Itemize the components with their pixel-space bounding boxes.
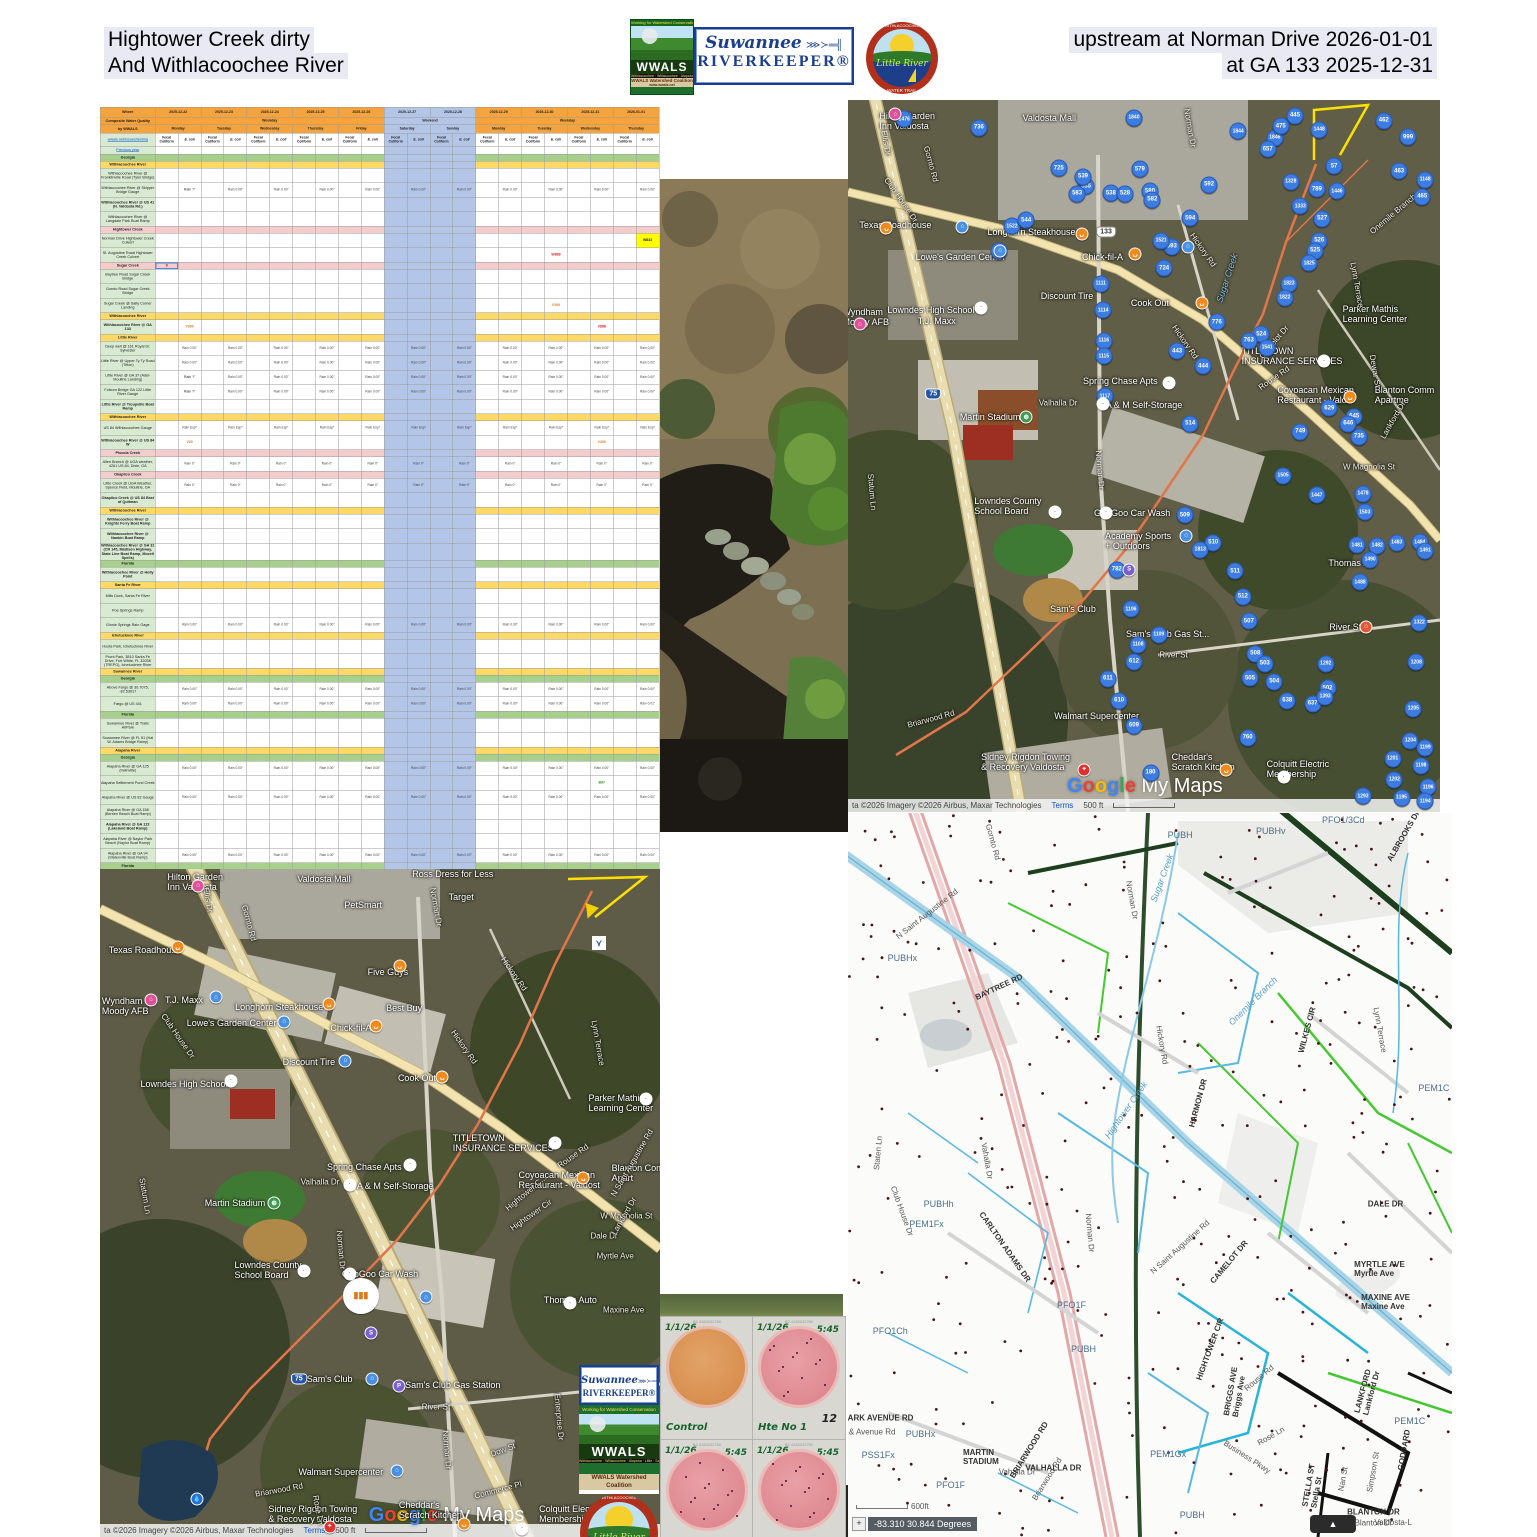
date-header: 2025-12-26: [338, 107, 384, 117]
value-cell: [316, 471, 339, 478]
value-cell: [361, 493, 384, 508]
value-cell: [613, 262, 636, 269]
poi-marker[interactable]: ⌂: [1360, 620, 1373, 633]
numbered-map-marker[interactable]: 512: [1234, 588, 1251, 605]
value-cell: Rain 0": [270, 457, 293, 472]
numbered-map-marker[interactable]: 1111: [1092, 275, 1109, 292]
poi-marker[interactable]: ◍: [268, 1197, 281, 1210]
numbered-map-marker[interactable]: 1198: [1413, 757, 1430, 774]
satellite-map-bottom-left[interactable]: ta ©2026 Imagery ©2026 Airbus, Maxar Tec…: [100, 869, 660, 1537]
poi-marker[interactable]: ·: [1277, 771, 1290, 784]
numbered-map-marker[interactable]: 1483: [1388, 534, 1405, 551]
value-cell: [201, 632, 224, 639]
value-cell: [476, 668, 499, 675]
poi-marker[interactable]: ⌖: [323, 1520, 336, 1533]
value-cell: [224, 805, 247, 820]
value-cell: [567, 284, 590, 299]
poi-marker[interactable]: ⌂: [1180, 529, 1193, 542]
numbered-map-marker[interactable]: 1108: [1130, 636, 1147, 653]
numbered-map-marker[interactable]: 444: [1195, 358, 1212, 375]
collapse-button[interactable]: ▲: [1310, 1515, 1356, 1533]
coordinate-readout: -83.310 30.844 Degrees: [868, 1517, 977, 1531]
value-cell: [407, 819, 430, 834]
value-cell: [567, 682, 590, 697]
value-cell: [155, 161, 178, 168]
numbered-map-marker[interactable]: 1116: [1095, 332, 1112, 349]
value-cell: [567, 493, 590, 508]
numbered-map-marker[interactable]: 1491: [1417, 542, 1434, 559]
value-cell: [476, 589, 499, 604]
value-cell: [613, 313, 636, 320]
numbered-map-marker[interactable]: 1205: [1405, 700, 1422, 717]
numbered-map-marker[interactable]: 507: [1240, 613, 1257, 630]
poi-marker[interactable]: ·: [564, 1297, 577, 1310]
numbered-map-marker[interactable]: 736: [970, 119, 987, 136]
numbered-map-marker[interactable]: 1448: [1311, 121, 1328, 138]
poster: Hightower Creek dirty And Withlacoochee …: [0, 0, 1537, 1537]
map-label: Texas Roadhouse: [109, 945, 181, 955]
poi-marker[interactable]: S: [365, 1327, 378, 1340]
numbered-map-marker[interactable]: 1844: [1230, 123, 1247, 140]
poi-marker[interactable]: ·: [343, 1178, 356, 1191]
value-cell: [338, 435, 361, 450]
numbered-map-marker[interactable]: 505: [1241, 670, 1258, 687]
site-label: Florida: [100, 711, 155, 718]
poi-marker[interactable]: ⌂: [994, 244, 1007, 257]
value-cell: [567, 848, 590, 863]
numbered-map-marker[interactable]: 1115: [1095, 348, 1112, 365]
value-cell: V200: [545, 298, 568, 313]
value-cell: [338, 168, 361, 183]
value-cell: Rain 0.00": [453, 848, 476, 863]
numbered-map-marker[interactable]: 609: [1125, 717, 1142, 734]
poi-marker[interactable]: ·: [225, 1074, 238, 1087]
value-cell: Rain Esp*: [178, 421, 201, 436]
value-cell: [270, 654, 293, 669]
numbered-map-marker[interactable]: 724: [1156, 260, 1173, 277]
value-cell: [567, 589, 590, 604]
numbered-map-marker[interactable]: 503: [1256, 655, 1273, 672]
numbered-map-marker[interactable]: 528: [1117, 185, 1134, 202]
value-cell: [407, 226, 430, 233]
poi-marker[interactable]: ⌂: [192, 879, 205, 892]
value-cell: [545, 675, 568, 682]
value-cell: [293, 848, 316, 863]
value-cell: [613, 341, 636, 356]
numbered-map-marker[interactable]: 57: [1326, 158, 1343, 175]
value-cell: Rain 0.00": [361, 341, 384, 356]
value-cell: [567, 320, 590, 335]
handwritten-time: 5:45: [725, 1448, 747, 1458]
value-cell: [407, 805, 430, 820]
map-label: MARTIN STADIUM: [963, 1448, 999, 1466]
numbered-map-marker[interactable]: 1328: [1282, 173, 1299, 190]
large-poi-marker[interactable]: ▮▮▮: [343, 1278, 379, 1314]
value-cell: [590, 754, 613, 761]
value-cell: [224, 567, 247, 582]
value-cell: [155, 834, 178, 849]
poi-marker[interactable]: ⌂: [419, 1291, 432, 1304]
numbered-map-marker[interactable]: 1490: [1362, 551, 1379, 568]
value-cell: [522, 341, 545, 356]
value-cell: [361, 262, 384, 269]
value-cell: Rain 0.00": [590, 356, 613, 371]
numbered-map-marker[interactable]: 579: [1131, 161, 1148, 178]
poi-marker[interactable]: ⍽: [393, 959, 406, 972]
value-cell: [361, 320, 384, 335]
terms-link[interactable]: Terms: [1052, 801, 1074, 810]
value-cell: [270, 414, 293, 421]
value-cell: [613, 493, 636, 508]
numbered-map-marker[interactable]: 1822: [1276, 289, 1293, 306]
poi-marker[interactable]: ·: [516, 1522, 529, 1535]
value-cell: [545, 212, 568, 227]
value-cell: [224, 582, 247, 589]
poi-marker[interactable]: ⍽: [370, 1019, 383, 1032]
colony-dot: [685, 1476, 687, 1478]
site-label: Withlacoochee River @ US 41 (N. Valdosta…: [100, 197, 155, 212]
value-cell: [201, 675, 224, 682]
terms-link[interactable]: Terms: [304, 1526, 326, 1535]
value-cell: [384, 711, 407, 718]
poi-marker[interactable]: ⍽: [880, 222, 893, 235]
numbered-map-marker[interactable]: 539: [1075, 168, 1092, 185]
value-cell: [476, 543, 499, 560]
numbered-map-marker[interactable]: 509: [1176, 507, 1193, 524]
poi-marker[interactable]: ·: [549, 1136, 562, 1149]
numbered-map-marker[interactable]: 999: [1400, 129, 1417, 146]
value-cell: [361, 212, 384, 227]
poi-marker[interactable]: ⌖: [1078, 763, 1091, 776]
wwals-logo-small: WWALS Withlacoochee · Willacoochee · Ala…: [579, 1414, 659, 1474]
poi-marker[interactable]: ·: [975, 301, 988, 314]
value-cell: Rain 0": [590, 478, 613, 493]
subcol-header: FecalColiform: [567, 133, 590, 146]
numbered-map-marker[interactable]: 514: [1182, 415, 1199, 432]
numbered-map-marker[interactable]: 1199: [1417, 739, 1434, 756]
value-cell: [430, 733, 453, 748]
poi-marker[interactable]: ⌂: [144, 993, 157, 1006]
empty-cell: [613, 146, 636, 154]
value-cell: [407, 543, 430, 560]
flag-marker[interactable]: ⋎: [592, 936, 606, 950]
value-cell: [522, 478, 545, 493]
value-cell: [522, 790, 545, 805]
numbered-map-marker[interactable]: 1194: [1417, 793, 1434, 810]
value-cell: [545, 603, 568, 618]
numbered-map-marker[interactable]: 789: [1308, 181, 1325, 198]
numbered-map-marker[interactable]: 629: [1321, 400, 1338, 417]
value-cell: [270, 776, 293, 791]
value-cell: [522, 385, 545, 400]
poi-marker[interactable]: ·: [1097, 398, 1110, 411]
poi-marker[interactable]: ·: [1100, 506, 1113, 519]
value-cell: Rain 0.00": [270, 385, 293, 400]
site-label: Above Fargo @ 30.7075, -82.53017: [100, 682, 155, 697]
value-cell: Rain 0.00": [178, 341, 201, 356]
poi-marker[interactable]: ⌂: [209, 991, 222, 1004]
value-cell: [201, 529, 224, 544]
poi-marker[interactable]: ⍽: [1196, 296, 1209, 309]
value-cell: [522, 154, 545, 161]
date-header: 2025-12-31: [567, 107, 613, 117]
poi-marker[interactable]: ⌂: [339, 1054, 352, 1067]
poi-marker[interactable]: ⌂: [853, 318, 866, 331]
numbered-map-marker[interactable]: 1148: [1417, 171, 1434, 188]
value-cell: [613, 603, 636, 618]
value-cell: [293, 385, 316, 400]
numbered-map-marker[interactable]: 1393: [1317, 688, 1334, 705]
value-cell: [453, 567, 476, 582]
value-cell: [476, 761, 499, 776]
poi-marker[interactable]: 💧: [190, 1492, 203, 1505]
map-label: Colquitt Electric Membership: [1267, 759, 1330, 779]
value-cell: Rain 0.00": [224, 618, 247, 633]
value-cell: [293, 421, 316, 436]
numbered-map-marker[interactable]: 1521: [1153, 232, 1170, 249]
numbered-map-marker[interactable]: 1447: [1308, 487, 1325, 504]
numbered-map-marker[interactable]: 462: [1375, 112, 1392, 129]
numbered-map-marker[interactable]: 1825: [1301, 255, 1318, 272]
value-cell: Rain 0.00": [590, 790, 613, 805]
colony-dot: [776, 1519, 778, 1521]
numbered-map-marker[interactable]: 1292: [1317, 655, 1334, 672]
table-row: Alapaha River @ GA 125 (Irwinville)Rain …: [100, 761, 659, 776]
poi-marker[interactable]: ◍: [1020, 410, 1033, 423]
value-cell: Rain 0.00": [590, 761, 613, 776]
numbered-map-marker[interactable]: 725: [1050, 160, 1067, 177]
poi-marker[interactable]: S: [1123, 563, 1136, 576]
numbered-map-marker[interactable]: 1293: [1355, 788, 1372, 805]
poi-marker[interactable]: ⌂: [889, 108, 902, 121]
value-cell: [499, 334, 522, 341]
site-label: Withlacoochee River: [100, 507, 155, 514]
value-cell: [545, 197, 568, 212]
empty-cell: [499, 146, 522, 154]
numbered-map-marker[interactable]: 592: [1201, 176, 1218, 193]
numbered-map-marker[interactable]: 1195: [1393, 789, 1410, 806]
poi-marker[interactable]: ·: [640, 1093, 653, 1106]
value-cell: [293, 168, 316, 183]
value-cell: [590, 543, 613, 560]
poi-marker[interactable]: ⌂: [278, 1015, 291, 1028]
previous-year-link[interactable]: Previous year: [100, 146, 155, 154]
testing-link[interactable]: wwals.net/issues/testing: [100, 133, 155, 146]
numbered-map-marker[interactable]: 638: [1279, 692, 1296, 709]
value-cell: [384, 370, 407, 385]
week-group-header: Weekday: [476, 117, 659, 125]
numbered-map-marker[interactable]: 475: [1272, 118, 1289, 135]
numbered-map-marker[interactable]: 776: [1208, 314, 1225, 331]
table-row: Little River @ Troupville Boat Ramp: [100, 399, 659, 414]
value-cell: [407, 754, 430, 761]
numbered-map-marker[interactable]: 646: [1340, 415, 1357, 432]
site-label: Florida: [100, 560, 155, 567]
poi-marker[interactable]: ⍽: [323, 997, 336, 1010]
numbered-map-marker[interactable]: 1505: [1275, 467, 1292, 484]
poi-marker[interactable]: ·: [1049, 506, 1062, 519]
poi-marker[interactable]: ⍽: [436, 1070, 449, 1083]
value-cell: [338, 478, 361, 493]
value-cell: Rain 0": [361, 478, 384, 493]
numbered-map-marker[interactable]: 760: [1239, 729, 1256, 746]
day-header: Sunday: [430, 125, 476, 134]
value-cell: Rain 0.00": [545, 385, 568, 400]
value-cell: Rain 0.00": [178, 790, 201, 805]
value-cell: [247, 514, 270, 529]
poi-marker[interactable]: ⌂: [366, 1372, 379, 1385]
poi-marker[interactable]: ·: [297, 1265, 310, 1278]
value-cell: [293, 834, 316, 849]
value-cell: [430, 298, 453, 313]
value-cell: [407, 507, 430, 514]
numbered-map-marker[interactable]: 1333: [1292, 198, 1309, 215]
utility-wetland-map[interactable]: 600ft + -83.310 30.844 Degrees ▲ Valdost…: [848, 813, 1452, 1537]
poi-marker[interactable]: ⌂: [1181, 240, 1194, 253]
numbered-map-marker[interactable]: 1114: [1095, 302, 1112, 319]
numbered-map-marker[interactable]: 1541: [1259, 339, 1276, 356]
numbered-map-marker[interactable]: 511: [1227, 563, 1244, 580]
value-cell: Rain 0.00": [316, 697, 339, 712]
numbered-map-marker[interactable]: 611: [1099, 670, 1116, 687]
value-cell: [407, 284, 430, 299]
value-cell: [499, 675, 522, 682]
value-cell: Rain 0": [453, 457, 476, 472]
value-cell: [567, 435, 590, 450]
value-cell: [201, 313, 224, 320]
numbered-map-marker[interactable]: 1840: [1125, 109, 1142, 126]
poi-marker[interactable]: ⌂: [390, 1464, 403, 1477]
numbered-map-marker[interactable]: 465: [1414, 188, 1431, 205]
value-cell: [567, 399, 590, 414]
value-cell: Rain 0.00": [590, 682, 613, 697]
numbered-map-marker[interactable]: 1109: [1150, 626, 1167, 643]
value-cell: Rain 0.00": [316, 790, 339, 805]
value-cell: Rain 0.00": [316, 370, 339, 385]
creek-photo: [660, 179, 848, 832]
value-cell: [499, 269, 522, 284]
numbered-map-marker[interactable]: 1106: [1122, 601, 1139, 618]
value-cell: Rain 0.00": [407, 682, 430, 697]
satellite-map-top-right[interactable]: ta ©2026 Imagery ©2026 Airbus, Maxar Tec…: [848, 100, 1440, 812]
value-cell: [499, 560, 522, 567]
value-cell: Rain 0.00": [407, 385, 430, 400]
value-cell: [430, 654, 453, 669]
empty-cell: [201, 146, 224, 154]
numbered-map-marker[interactable]: 544: [1018, 212, 1035, 229]
numbered-map-marker[interactable]: 583: [1069, 185, 1086, 202]
numbered-map-marker[interactable]: 1481: [1349, 537, 1366, 554]
numbered-map-marker[interactable]: 1208: [1408, 654, 1425, 671]
value-cell: [453, 248, 476, 263]
value-cell: [247, 747, 270, 754]
numbered-map-marker[interactable]: 612: [1125, 653, 1142, 670]
numbered-map-marker[interactable]: 582: [1144, 191, 1161, 208]
value-cell: [338, 385, 361, 400]
value-cell: [476, 226, 499, 233]
value-cell: [545, 493, 568, 508]
value-cell: [499, 543, 522, 560]
numbered-map-marker[interactable]: 1503: [1356, 504, 1373, 521]
value-cell: [636, 313, 659, 320]
value-cell: [636, 718, 659, 733]
site-label: Withlacoochee River: [100, 313, 155, 320]
numbered-map-marker[interactable]: 1488: [1352, 574, 1369, 591]
colony-dot: [773, 1345, 775, 1347]
value-cell: [316, 834, 339, 849]
zoom-plus-button[interactable]: +: [852, 1517, 866, 1531]
value-cell: [247, 834, 270, 849]
poi-marker[interactable]: ·: [404, 1158, 417, 1171]
poi-marker[interactable]: ⍽: [1075, 227, 1088, 240]
poi-marker[interactable]: P: [393, 1380, 406, 1393]
numbered-map-marker[interactable]: 763: [1240, 332, 1257, 349]
value-cell: [270, 603, 293, 618]
numbered-map-marker[interactable]: 1322: [1411, 614, 1428, 631]
numbered-map-marker[interactable]: 1813: [1192, 541, 1209, 558]
numbered-map-marker[interactable]: 1478: [1355, 485, 1372, 502]
coordinate-chip[interactable]: + -83.310 30.844 Degrees: [852, 1517, 977, 1531]
numbered-map-marker[interactable]: 1201: [1384, 750, 1401, 767]
poi-marker[interactable]: ⍽: [1129, 247, 1142, 260]
value-cell: [545, 262, 568, 269]
value-cell: [338, 507, 361, 514]
value-cell: [155, 639, 178, 654]
numbered-map-marker[interactable]: 657: [1259, 141, 1276, 158]
numbered-map-marker[interactable]: 527: [1314, 210, 1331, 227]
value-cell: [453, 414, 476, 421]
value-cell: [316, 543, 339, 560]
poi-marker[interactable]: ⍽: [458, 1517, 471, 1530]
value-cell: [155, 478, 178, 493]
poi-marker[interactable]: ⍽: [577, 1172, 590, 1185]
value-cell: [476, 682, 499, 697]
poi-marker[interactable]: ·: [1317, 355, 1330, 368]
numbered-map-marker[interactable]: 610: [1111, 692, 1128, 709]
numbered-map-marker[interactable]: 504: [1266, 673, 1283, 690]
colony-dot: [818, 1477, 820, 1479]
value-cell: [522, 560, 545, 567]
poi-marker[interactable]: ⍽: [171, 941, 184, 954]
value-cell: [407, 567, 430, 582]
numbered-map-marker[interactable]: 180: [1142, 764, 1159, 781]
numbered-map-marker[interactable]: 463: [1391, 163, 1408, 180]
poi-marker[interactable]: ⌂: [956, 220, 969, 233]
numbered-map-marker[interactable]: 594: [1182, 210, 1199, 227]
numbered-map-marker[interactable]: 443: [1169, 343, 1186, 360]
value-cell: [338, 471, 361, 478]
wwals-coalition-band: WWALS Watershed Coalitionwww.wwals.net: [579, 1474, 659, 1490]
poi-marker[interactable]: ⍽: [1344, 390, 1357, 403]
value-cell: [338, 334, 361, 341]
value-cell: [476, 718, 499, 733]
poi-marker[interactable]: ·: [1162, 376, 1175, 389]
poi-marker[interactable]: ⍽: [1220, 763, 1233, 776]
scale-bar: [365, 1528, 427, 1533]
value-cell: [453, 632, 476, 639]
value-cell: Rain 0.00": [453, 790, 476, 805]
value-cell: Rain 0.00": [545, 370, 568, 385]
value-cell: [613, 754, 636, 761]
value-cell: [613, 450, 636, 457]
value-cell: [430, 711, 453, 718]
numbered-map-marker[interactable]: 445: [1286, 107, 1303, 124]
numbered-map-marker[interactable]: 749: [1292, 423, 1309, 440]
value-cell: [224, 212, 247, 227]
numbered-map-marker[interactable]: 1202: [1386, 771, 1403, 788]
value-cell: [384, 819, 407, 834]
numbered-map-marker[interactable]: 1446: [1328, 183, 1345, 200]
